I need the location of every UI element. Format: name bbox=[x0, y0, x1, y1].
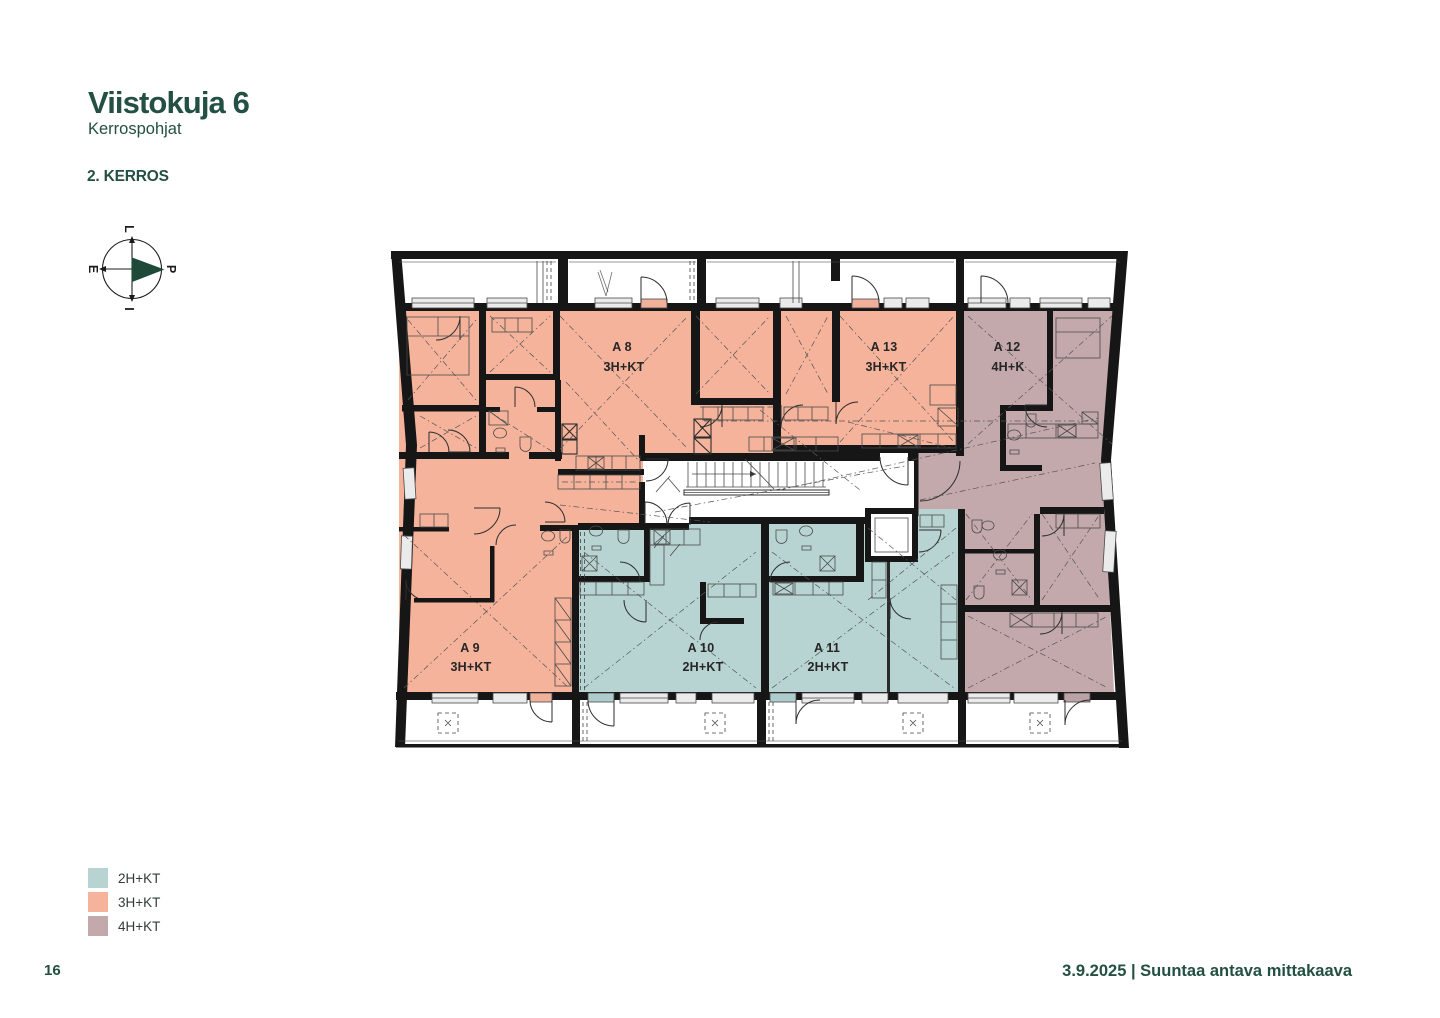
svg-text:A 10: A 10 bbox=[688, 641, 715, 655]
svg-text:2H+KT: 2H+KT bbox=[683, 660, 724, 674]
svg-text:Viistokuja 6: Viistokuja 6 bbox=[88, 85, 250, 120]
svg-text:3H+KT: 3H+KT bbox=[451, 660, 492, 674]
svg-text:Kerrospohjat: Kerrospohjat bbox=[88, 120, 182, 138]
svg-text:I: I bbox=[122, 307, 136, 310]
svg-text:E: E bbox=[86, 265, 100, 273]
svg-text:2H+KT: 2H+KT bbox=[808, 660, 849, 674]
svg-text:3H+KT: 3H+KT bbox=[866, 360, 907, 374]
svg-text:2H+KT: 2H+KT bbox=[118, 871, 160, 886]
svg-text:4H+KT: 4H+KT bbox=[118, 919, 160, 934]
svg-text:4H+K: 4H+K bbox=[991, 360, 1024, 374]
svg-text:A 12: A 12 bbox=[994, 340, 1021, 354]
svg-text:L: L bbox=[122, 225, 136, 233]
svg-text:A 8: A 8 bbox=[612, 340, 632, 354]
svg-text:3H+KT: 3H+KT bbox=[118, 895, 160, 910]
svg-text:A 9: A 9 bbox=[460, 641, 480, 655]
svg-text:2. KERROS: 2. KERROS bbox=[87, 168, 169, 185]
svg-text:3.9.2025 | Suuntaa antava mitt: 3.9.2025 | Suuntaa antava mittakaava bbox=[1062, 962, 1353, 980]
svg-text:P: P bbox=[164, 265, 178, 273]
svg-text:16: 16 bbox=[44, 962, 61, 979]
svg-text:A 11: A 11 bbox=[814, 641, 840, 655]
svg-text:A 13: A 13 bbox=[871, 340, 898, 354]
svg-text:3H+KT: 3H+KT bbox=[604, 360, 645, 374]
